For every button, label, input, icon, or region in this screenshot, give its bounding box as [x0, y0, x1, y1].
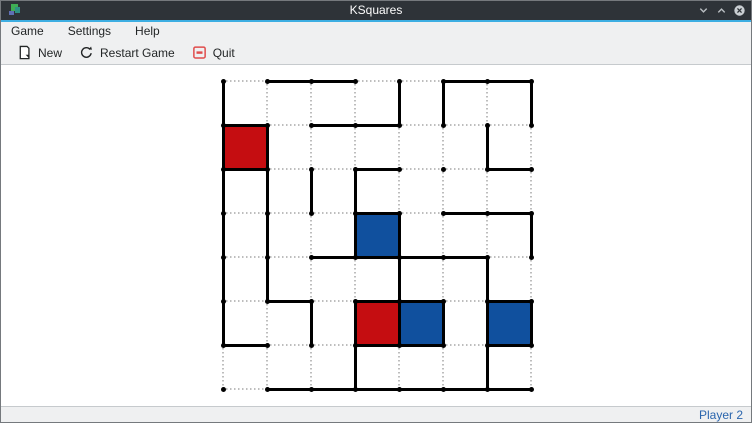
v-line-0-0 — [222, 80, 225, 126]
grid-dot — [353, 211, 358, 216]
menu-game[interactable]: Game — [11, 22, 44, 41]
v-line-3-0 — [222, 212, 225, 258]
v-line-4-6 — [486, 256, 489, 302]
h-line-1-6[interactable] — [490, 124, 528, 126]
captured-square-player2 — [400, 302, 442, 344]
grid-dot — [529, 167, 534, 172]
v-line-5-0 — [222, 300, 225, 346]
v-line-1-4[interactable] — [398, 128, 400, 166]
grid-dot — [441, 299, 446, 304]
grid-dot — [485, 123, 490, 128]
v-line-1-7[interactable] — [530, 128, 532, 166]
grid-dot — [353, 299, 358, 304]
statusbar: Player 2 — [1, 406, 751, 422]
grid-dot — [397, 387, 402, 392]
grid-dot — [221, 79, 226, 84]
v-line-5-2 — [310, 300, 313, 346]
v-line-2-0 — [222, 168, 225, 214]
grid-dot — [529, 387, 534, 392]
h-line-2-6 — [486, 168, 532, 171]
h-line-3-3 — [354, 212, 400, 215]
v-line-6-0[interactable] — [222, 348, 224, 386]
h-line-1-2 — [310, 124, 356, 127]
v-line-2-6[interactable] — [486, 172, 488, 210]
grid-dot — [485, 79, 490, 84]
grid-dot — [485, 343, 490, 348]
h-line-7-3 — [354, 388, 400, 391]
h-line-3-4[interactable] — [402, 212, 440, 214]
grid-dot — [529, 211, 534, 216]
captured-square-player1 — [356, 302, 398, 344]
grid-dot — [309, 167, 314, 172]
v-line-6-7[interactable] — [530, 348, 532, 386]
h-line-5-4 — [398, 300, 444, 303]
h-line-4-5 — [442, 256, 488, 259]
v-line-0-6[interactable] — [486, 84, 488, 122]
h-line-0-2 — [310, 80, 356, 83]
v-line-3-5[interactable] — [442, 216, 444, 254]
v-line-4-4 — [398, 256, 401, 302]
v-line-0-3[interactable] — [354, 84, 356, 122]
h-line-0-6 — [486, 80, 532, 83]
grid-dot — [397, 79, 402, 84]
v-line-4-5[interactable] — [442, 260, 444, 298]
grid-dot — [353, 387, 358, 392]
grid-dot — [529, 299, 534, 304]
quit-label: Quit — [213, 46, 235, 60]
v-line-3-6[interactable] — [486, 216, 488, 254]
close-button[interactable] — [732, 3, 747, 18]
captured-square-player1 — [224, 126, 266, 168]
v-line-1-2[interactable] — [310, 128, 312, 166]
h-line-4-1[interactable] — [270, 256, 308, 258]
ksquares-app-icon — [7, 3, 23, 17]
grid-dot — [309, 255, 314, 260]
grid-dot — [485, 167, 490, 172]
grid-dot — [221, 211, 226, 216]
grid-dot — [221, 387, 226, 392]
v-line-0-7 — [530, 80, 533, 126]
h-line-7-0[interactable] — [226, 388, 264, 390]
v-line-0-5 — [442, 80, 445, 126]
grid-dot — [397, 343, 402, 348]
h-line-6-1[interactable] — [270, 344, 308, 346]
h-line-4-0[interactable] — [226, 256, 264, 258]
grid-dot — [309, 343, 314, 348]
h-line-5-0[interactable] — [226, 300, 264, 302]
grid-dot — [265, 255, 270, 260]
h-line-3-1[interactable] — [270, 212, 308, 214]
v-line-2-1 — [266, 168, 269, 214]
v-line-6-5[interactable] — [442, 348, 444, 386]
v-line-2-3 — [354, 168, 357, 214]
v-line-4-2[interactable] — [310, 260, 312, 298]
ksquares-window: KSquares Game Settings Help — [0, 0, 752, 423]
v-line-6-1[interactable] — [266, 348, 268, 386]
grid-dot — [485, 255, 490, 260]
minimize-button[interactable] — [696, 3, 711, 18]
v-line-5-6 — [486, 300, 489, 346]
menubar: Game Settings Help — [1, 22, 751, 41]
grid-dot — [441, 79, 446, 84]
grid-dot — [441, 343, 446, 348]
grid-dot — [265, 167, 270, 172]
grid-dot — [353, 167, 358, 172]
grid-dot — [309, 123, 314, 128]
titlebar: KSquares — [1, 1, 751, 20]
h-line-1-1[interactable] — [270, 124, 308, 126]
v-line-0-2[interactable] — [310, 84, 312, 122]
h-line-5-5[interactable] — [446, 300, 484, 302]
v-line-1-0 — [222, 124, 225, 170]
h-line-1-5[interactable] — [446, 124, 484, 126]
captured-square-player2 — [488, 302, 530, 344]
h-line-0-1 — [266, 80, 312, 83]
h-line-6-2[interactable] — [314, 344, 352, 346]
v-line-1-3[interactable] — [354, 128, 356, 166]
h-line-4-2 — [310, 256, 356, 259]
h-line-2-4[interactable] — [402, 168, 440, 170]
v-line-6-4[interactable] — [398, 348, 400, 386]
h-line-2-2[interactable] — [314, 168, 352, 170]
v-line-6-3 — [354, 344, 357, 390]
v-line-4-0 — [222, 256, 225, 302]
v-line-5-5 — [442, 300, 445, 346]
grid-dot — [265, 299, 270, 304]
h-line-4-6[interactable] — [490, 256, 528, 258]
grid-dot — [397, 123, 402, 128]
maximize-button[interactable] — [714, 3, 729, 18]
h-line-5-2[interactable] — [314, 300, 352, 302]
h-line-7-1 — [266, 388, 312, 391]
v-line-1-5[interactable] — [442, 128, 444, 166]
h-line-7-2 — [310, 388, 356, 391]
v-line-3-7 — [530, 212, 533, 258]
grid-dot — [265, 79, 270, 84]
v-line-0-1[interactable] — [266, 84, 268, 122]
grid-dot — [221, 167, 226, 172]
grid-dot — [397, 299, 402, 304]
h-line-6-5[interactable] — [446, 344, 484, 346]
grid-dot — [309, 79, 314, 84]
menu-help[interactable]: Help — [135, 22, 160, 41]
v-line-2-5[interactable] — [442, 172, 444, 210]
grid-dot — [529, 255, 534, 260]
v-line-6-2[interactable] — [310, 348, 312, 386]
new-game-button[interactable]: New — [17, 45, 62, 60]
v-line-2-2 — [310, 168, 313, 214]
grid-dot — [485, 387, 490, 392]
grid-dot — [397, 211, 402, 216]
h-line-7-5 — [442, 388, 488, 391]
h-line-7-6 — [486, 388, 532, 391]
h-line-5-1 — [266, 300, 312, 303]
v-line-3-2[interactable] — [310, 216, 312, 254]
restart-game-label: Restart Game — [100, 46, 175, 60]
v-line-1-1 — [266, 124, 269, 170]
h-line-3-0[interactable] — [226, 212, 264, 214]
grid-dot — [265, 123, 270, 128]
grid-dot — [529, 79, 534, 84]
v-line-4-1 — [266, 256, 269, 302]
v-line-4-3[interactable] — [354, 260, 356, 298]
v-line-0-4 — [398, 80, 401, 126]
h-line-5-3 — [354, 300, 400, 303]
grid-dot — [221, 343, 226, 348]
h-line-6-6 — [486, 344, 532, 347]
h-line-0-0[interactable] — [226, 80, 264, 82]
grid-dot — [485, 299, 490, 304]
grid-dot — [221, 299, 226, 304]
h-line-2-5[interactable] — [446, 168, 484, 170]
h-line-2-1[interactable] — [270, 168, 308, 170]
grid-dot — [485, 211, 490, 216]
menu-settings[interactable]: Settings — [68, 22, 111, 41]
grid-dot — [441, 167, 446, 172]
h-line-3-5 — [442, 212, 488, 215]
v-line-3-4 — [398, 212, 401, 258]
window-controls — [696, 1, 747, 20]
h-line-3-6 — [486, 212, 532, 215]
grid-dot — [353, 79, 358, 84]
h-line-2-0 — [222, 168, 268, 171]
v-line-5-4 — [398, 300, 401, 346]
h-line-1-4[interactable] — [402, 124, 440, 126]
h-line-6-4 — [398, 344, 444, 347]
grid-dot — [441, 211, 446, 216]
grid-dot — [353, 123, 358, 128]
h-line-1-3 — [354, 124, 400, 127]
quit-icon — [192, 45, 207, 60]
grid-dot — [353, 343, 358, 348]
new-document-icon — [17, 45, 32, 60]
grid-dot — [529, 343, 534, 348]
h-line-4-4 — [398, 256, 444, 259]
grid-dot — [441, 255, 446, 260]
v-line-3-3 — [354, 212, 357, 258]
restart-icon — [79, 45, 94, 60]
window-title: KSquares — [1, 1, 751, 20]
grid-dot — [221, 255, 226, 260]
grid-dot — [265, 211, 270, 216]
h-line-0-4[interactable] — [402, 80, 440, 82]
current-player-label: Player 2 — [699, 408, 743, 422]
h-line-6-3 — [354, 344, 400, 347]
v-line-5-1[interactable] — [266, 304, 268, 342]
toolbar: New Restart Game Quit — [1, 41, 751, 65]
grid-dot — [309, 299, 314, 304]
grid-dot — [397, 167, 402, 172]
grid-dot — [265, 343, 270, 348]
v-line-2-7[interactable] — [530, 172, 532, 210]
h-line-7-4 — [398, 388, 444, 391]
v-line-1-6 — [486, 124, 489, 170]
v-line-2-4[interactable] — [398, 172, 400, 210]
v-line-4-7[interactable] — [530, 260, 532, 298]
grid-dot — [441, 123, 446, 128]
grid-dot — [353, 255, 358, 260]
grid-dot — [309, 387, 314, 392]
h-line-0-3[interactable] — [358, 80, 396, 82]
grid-dot — [441, 387, 446, 392]
v-line-3-1 — [266, 212, 269, 258]
v-line-5-3 — [354, 300, 357, 346]
grid-dot — [529, 123, 534, 128]
grid-dot — [309, 211, 314, 216]
grid-dot — [265, 387, 270, 392]
h-line-1-0 — [222, 124, 268, 127]
captured-square-player2 — [356, 214, 398, 256]
h-line-3-2[interactable] — [314, 212, 352, 214]
quit-button[interactable]: Quit — [192, 45, 235, 60]
v-line-6-6 — [486, 344, 489, 390]
v-line-5-7 — [530, 300, 533, 346]
grid-dot — [221, 123, 226, 128]
h-line-0-5 — [442, 80, 488, 83]
h-line-5-6 — [486, 300, 532, 303]
grid-dot — [397, 255, 402, 260]
h-line-4-3 — [354, 256, 400, 259]
restart-game-button[interactable]: Restart Game — [79, 45, 175, 60]
h-line-2-3 — [354, 168, 400, 171]
new-game-label: New — [38, 46, 62, 60]
h-line-6-0 — [222, 344, 268, 347]
